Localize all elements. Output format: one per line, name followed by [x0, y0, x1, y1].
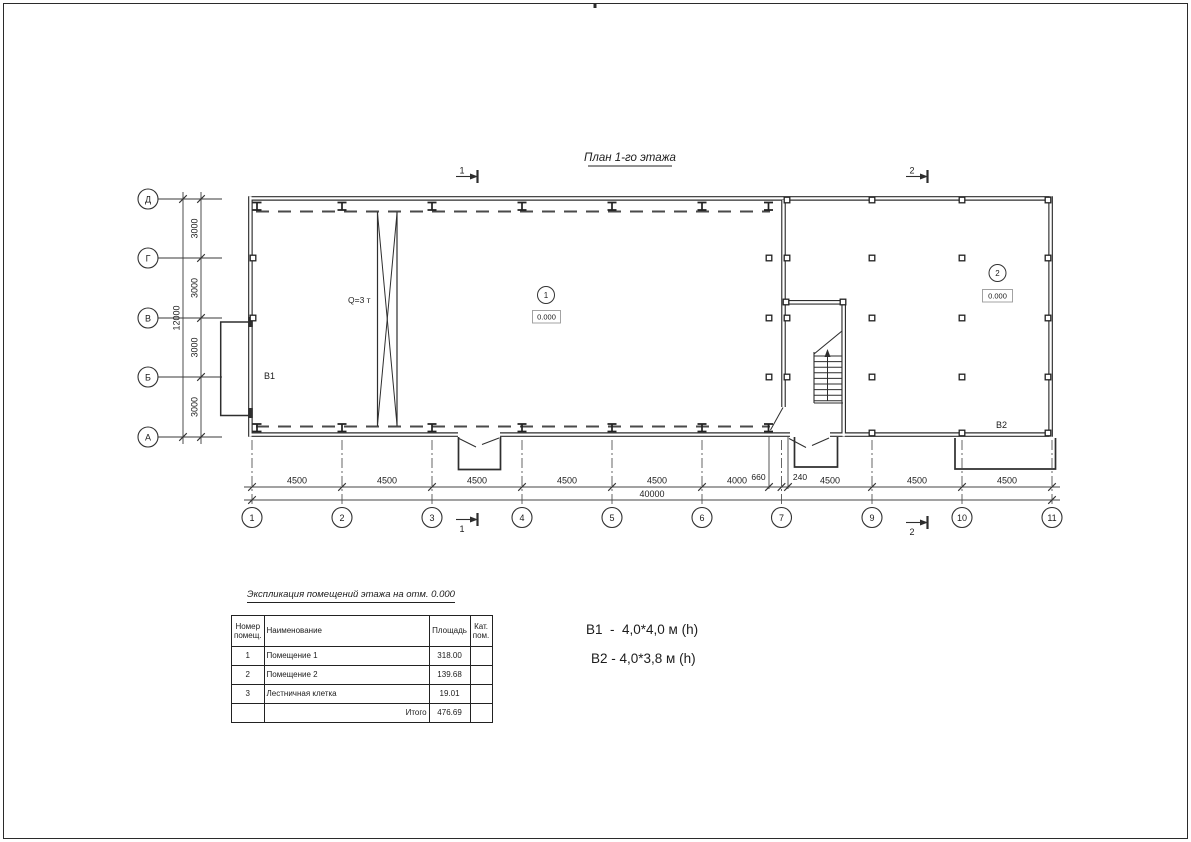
floor-plan-canvas: План 1-го этажа Д Г В Б А 3000 3000 3000… — [0, 0, 1191, 842]
room2-number: 2 — [995, 269, 1000, 278]
dim-label: 4000 — [727, 476, 747, 486]
dim-3000: 3000 — [190, 397, 200, 417]
row-axis-label: А — [145, 433, 151, 443]
cell-area: 19.01 — [429, 685, 470, 704]
crane-capacity-label: Q=3 т — [348, 295, 371, 305]
room1-number: 1 — [544, 291, 549, 300]
col-header-cat: Кат. пом. — [470, 616, 492, 647]
dim-3000: 3000 — [190, 218, 200, 238]
dim-label: 660 — [751, 472, 765, 482]
porch-stair — [795, 437, 838, 467]
row-axis-label: Д — [145, 195, 151, 205]
drawing-sheet: План 1-го этажа Д Г В Б А 3000 3000 3000… — [0, 0, 1191, 842]
dim-label: 4500 — [467, 476, 487, 486]
cell-cat — [470, 685, 492, 704]
section-number: 2 — [909, 166, 914, 176]
section-mark-1-top: 1 — [456, 166, 478, 184]
bottom-dim-labels: 4500 4500 4500 4500 4500 4000 660 240 45… — [287, 472, 1017, 499]
cell-cat — [470, 666, 492, 685]
cell-cat — [470, 647, 492, 666]
room1-elevation: 0.000 — [537, 313, 556, 322]
left-annex — [221, 317, 253, 418]
col-axis-label: 5 — [609, 513, 614, 523]
gate-note-v2: В2 - 4,0*3,8 м (h) — [591, 651, 696, 666]
cell-area: 318.00 — [429, 647, 470, 666]
col-axis-label: 10 — [957, 513, 967, 523]
exterior-door-left — [459, 438, 499, 447]
sheet-border — [4, 4, 1188, 839]
col-header-number: Номер помещ. — [232, 616, 265, 647]
explication-table: Номер помещ. Наименование Площадь Кат. п… — [231, 615, 493, 723]
cell-number: 2 — [232, 666, 265, 685]
dim-label: 4500 — [997, 476, 1017, 486]
cell-number: 3 — [232, 685, 265, 704]
total-label: Итого — [264, 704, 429, 723]
row-axis-bubbles: Д Г В Б А — [138, 189, 158, 447]
table-row: 2 Помещение 2 139.68 — [232, 666, 493, 685]
col-header-name: Наименование — [264, 616, 429, 647]
cell-area: 139.68 — [429, 666, 470, 685]
table-total-row: Итого 476.69 — [232, 704, 493, 723]
table-row: 1 Помещение 1 318.00 — [232, 647, 493, 666]
crane-symbol — [378, 212, 398, 426]
dim-label: 4500 — [907, 476, 927, 486]
section-mark-1-bottom: 1 — [456, 513, 478, 534]
col-axis-label: 2 — [339, 513, 344, 523]
explication-title: Экспликация помещений этажа на отм. 0.00… — [247, 589, 455, 603]
doors — [459, 408, 829, 448]
col-axis-label: 11 — [1047, 513, 1056, 523]
cell-name: Помещение 2 — [264, 666, 429, 685]
porches — [459, 437, 1056, 470]
section-mark-2-top: 2 — [906, 166, 928, 184]
cell-empty — [470, 704, 492, 723]
gate-label-v2: В2 — [996, 420, 1007, 430]
room2-elevation: 0.000 — [988, 292, 1007, 301]
gate-jamb — [248, 408, 253, 418]
square-columns — [250, 197, 1051, 436]
section-marks: 1 2 1 2 — [456, 166, 928, 538]
dim-label: 4500 — [820, 476, 840, 486]
cell-number: 1 — [232, 647, 265, 666]
plan-title: План 1-го этажа — [584, 152, 676, 164]
cell-name: Помещение 1 — [264, 647, 429, 666]
dim-label: 240 — [793, 472, 807, 482]
crane-rails — [256, 212, 770, 427]
row-axis-label: В — [145, 314, 151, 324]
interior-door-leaf — [771, 408, 784, 431]
dim-label: 4500 — [287, 476, 307, 486]
staircase — [814, 331, 843, 403]
total-value: 476.69 — [429, 704, 470, 723]
section-number: 1 — [459, 524, 464, 534]
gate-label-v1: В1 — [264, 371, 275, 381]
dim-label: 4500 — [647, 476, 667, 486]
col-axis-label: 6 — [699, 513, 704, 523]
table-row: 3 Лестничная клетка 19.01 — [232, 685, 493, 704]
col-axis-label: 3 — [429, 513, 434, 523]
col-axis-label: 9 — [869, 513, 874, 523]
section-mark-2-bottom: 2 — [906, 516, 928, 537]
col-axis-bubbles: 1 2 3 4 5 6 7 9 10 11 — [242, 508, 1062, 528]
dim-3000: 3000 — [190, 337, 200, 357]
dim-label: 4500 — [377, 476, 397, 486]
ibeam-columns — [253, 203, 774, 432]
col-axis-label: 1 — [249, 513, 254, 523]
section-number: 1 — [459, 166, 464, 176]
row-axis-label: Г — [146, 254, 151, 264]
wall-jamb-extensions — [769, 437, 788, 489]
section-number: 2 — [909, 527, 914, 537]
dim-label: 4500 — [557, 476, 577, 486]
gate-note-v1: В1 - 4,0*4,0 м (h) — [586, 622, 698, 637]
col-axis-label: 4 — [519, 513, 524, 523]
dim-total-label: 40000 — [639, 489, 664, 499]
loading-dock — [955, 438, 1056, 469]
col-header-area: Площадь — [429, 616, 470, 647]
table-header-row: Номер помещ. Наименование Площадь Кат. п… — [232, 616, 493, 647]
cell-name: Лестничная клетка — [264, 685, 429, 704]
room1-tag: 1 0.000 — [533, 287, 561, 324]
stair-direction-arrow — [825, 349, 831, 357]
dim-3000: 3000 — [190, 278, 200, 298]
row-axis-label: Б — [145, 373, 151, 383]
walls — [250, 196, 1050, 437]
dim-12000: 12000 — [172, 305, 182, 330]
col-axis-label: 7 — [779, 513, 784, 523]
room2-tag: 2 0.000 — [983, 265, 1013, 303]
cell-empty — [232, 704, 265, 723]
